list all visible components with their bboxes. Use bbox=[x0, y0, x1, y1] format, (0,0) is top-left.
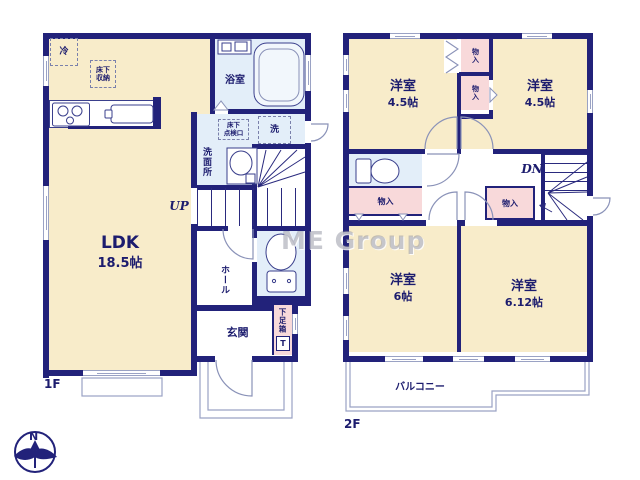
wall bbox=[191, 224, 197, 358]
ldk-name-text: LDK bbox=[101, 233, 139, 253]
room4-size-text: 6.12帖 bbox=[505, 294, 543, 310]
wall bbox=[252, 296, 305, 305]
wall bbox=[349, 149, 425, 154]
balcony-label: バルコニー bbox=[370, 379, 470, 392]
floor1-label-text: 1F bbox=[44, 377, 61, 391]
ldk-room-name: LDK bbox=[60, 234, 180, 252]
window bbox=[43, 56, 49, 86]
bathroom-label: 浴室 bbox=[213, 71, 257, 85]
wall bbox=[272, 305, 274, 355]
wall bbox=[497, 220, 587, 226]
room3-size-text: 6帖 bbox=[394, 288, 413, 304]
wall bbox=[191, 112, 197, 188]
wall bbox=[252, 144, 305, 149]
floor2-label-text: 2F bbox=[344, 417, 361, 431]
fridge-space: 冷 bbox=[50, 38, 78, 66]
wall bbox=[252, 262, 257, 300]
window bbox=[390, 33, 420, 39]
room3-name-text: 洋室 bbox=[390, 269, 416, 288]
window bbox=[453, 356, 484, 362]
washroom-label: 洗面所 bbox=[200, 135, 213, 189]
wall bbox=[197, 305, 272, 311]
ldk-room-size: 18.5帖 bbox=[60, 254, 180, 269]
ldk-size-text: 18.5帖 bbox=[97, 252, 142, 271]
wall bbox=[252, 356, 298, 362]
underfloor-storage-label: 収納 bbox=[96, 74, 110, 82]
wall bbox=[349, 186, 422, 188]
porch-outline bbox=[200, 362, 292, 418]
wall bbox=[457, 114, 493, 119]
room2-size: 4.5帖 bbox=[493, 95, 587, 108]
door-opening bbox=[587, 196, 593, 216]
closet2-label: 物入 bbox=[469, 81, 482, 105]
room2-name: 洋室 bbox=[493, 76, 587, 92]
closet3-text: 物入 bbox=[378, 196, 394, 207]
hall-label: ホール bbox=[218, 257, 231, 303]
shoe-box-text: 下足箱 bbox=[277, 308, 288, 334]
room3-name: 洋室 bbox=[349, 270, 457, 286]
window bbox=[587, 90, 593, 113]
window bbox=[43, 186, 49, 240]
room4-name: 洋室 bbox=[461, 276, 587, 292]
compass-icon: N bbox=[14, 430, 57, 472]
stairs-down-treads bbox=[545, 154, 587, 194]
window bbox=[83, 370, 160, 376]
toilet2-fill bbox=[349, 154, 422, 186]
up-text: UP bbox=[169, 199, 189, 213]
room-fill bbox=[461, 119, 493, 149]
floor-plan-canvas: 冷 床下 収納 床下 点検口 洗 LDK 18.5帖 浴室 洗面所 UP ホール… bbox=[0, 0, 640, 480]
window bbox=[515, 356, 550, 362]
wall bbox=[457, 72, 461, 149]
wall bbox=[68, 126, 161, 129]
closet1-text: 物入 bbox=[471, 48, 481, 64]
room2-name-text: 洋室 bbox=[527, 75, 553, 94]
kitchen-counter bbox=[49, 100, 161, 128]
floor2-label: 2F bbox=[344, 417, 361, 431]
underfloor-hatch-label: 点検口 bbox=[224, 130, 244, 137]
washer-space: 洗 bbox=[258, 116, 291, 144]
stairs-winder-fill bbox=[257, 149, 305, 188]
underfloor-storage: 床下 収納 bbox=[90, 60, 116, 88]
window bbox=[305, 55, 311, 91]
room1-name: 洋室 bbox=[349, 76, 457, 92]
balcony-text: バルコニー bbox=[395, 378, 445, 393]
room1-name-text: 洋室 bbox=[390, 75, 416, 94]
window bbox=[292, 314, 298, 334]
watermark-text: ME Group bbox=[281, 226, 425, 255]
fridge-label: 冷 bbox=[59, 47, 68, 57]
window bbox=[343, 55, 349, 75]
closet4-label: 物入 bbox=[485, 197, 535, 209]
hall-text: ホール bbox=[218, 265, 231, 295]
wall bbox=[252, 226, 257, 238]
room3-size: 6帖 bbox=[349, 289, 457, 302]
door-opening bbox=[305, 121, 311, 143]
closet3-label: 物入 bbox=[349, 195, 422, 207]
underfloor-hatch: 床下 点検口 bbox=[218, 119, 249, 140]
wall bbox=[489, 39, 493, 80]
entrance-label: 玄関 bbox=[210, 325, 265, 339]
room1-size-text: 4.5帖 bbox=[388, 94, 419, 110]
window bbox=[522, 33, 552, 39]
wall bbox=[191, 356, 197, 376]
washer-label: 洗 bbox=[270, 125, 279, 135]
wall bbox=[461, 72, 489, 76]
floor1-label: 1F bbox=[44, 377, 61, 391]
stairs-up-label: UP bbox=[164, 199, 194, 213]
terrace-outline bbox=[82, 378, 162, 396]
stairs-down-label: DN bbox=[518, 162, 546, 176]
room4-size: 6.12帖 bbox=[461, 295, 587, 308]
underfloor-storage-label: 床下 bbox=[96, 66, 110, 74]
room2-size-text: 4.5帖 bbox=[525, 94, 556, 110]
stairs-up-treads bbox=[197, 188, 305, 226]
wall bbox=[349, 214, 422, 216]
watermark: ME Group bbox=[281, 226, 425, 255]
window bbox=[343, 316, 349, 340]
wall bbox=[228, 109, 305, 114]
shoe-box-label: 下足箱 bbox=[275, 307, 290, 335]
closet4-text: 物入 bbox=[502, 198, 518, 209]
compass-north-label: N bbox=[29, 430, 38, 443]
dn-text: DN bbox=[521, 162, 542, 176]
washroom-text: 洗面所 bbox=[200, 147, 213, 177]
shoe-box-mark: T bbox=[276, 336, 290, 351]
bathroom-text: 浴室 bbox=[225, 71, 245, 86]
wall bbox=[457, 149, 461, 154]
wall bbox=[43, 33, 311, 39]
entrance-text: 玄関 bbox=[227, 324, 249, 340]
window bbox=[385, 356, 423, 362]
wall bbox=[153, 97, 161, 129]
closet2-text: 物入 bbox=[471, 85, 481, 101]
room1-size: 4.5帖 bbox=[349, 95, 457, 108]
wall bbox=[343, 33, 593, 39]
room4-name-text: 洋室 bbox=[511, 275, 537, 294]
wall bbox=[197, 226, 228, 231]
shoe-box-mark-text: T bbox=[280, 339, 285, 348]
closet1-label: 物入 bbox=[469, 44, 482, 68]
